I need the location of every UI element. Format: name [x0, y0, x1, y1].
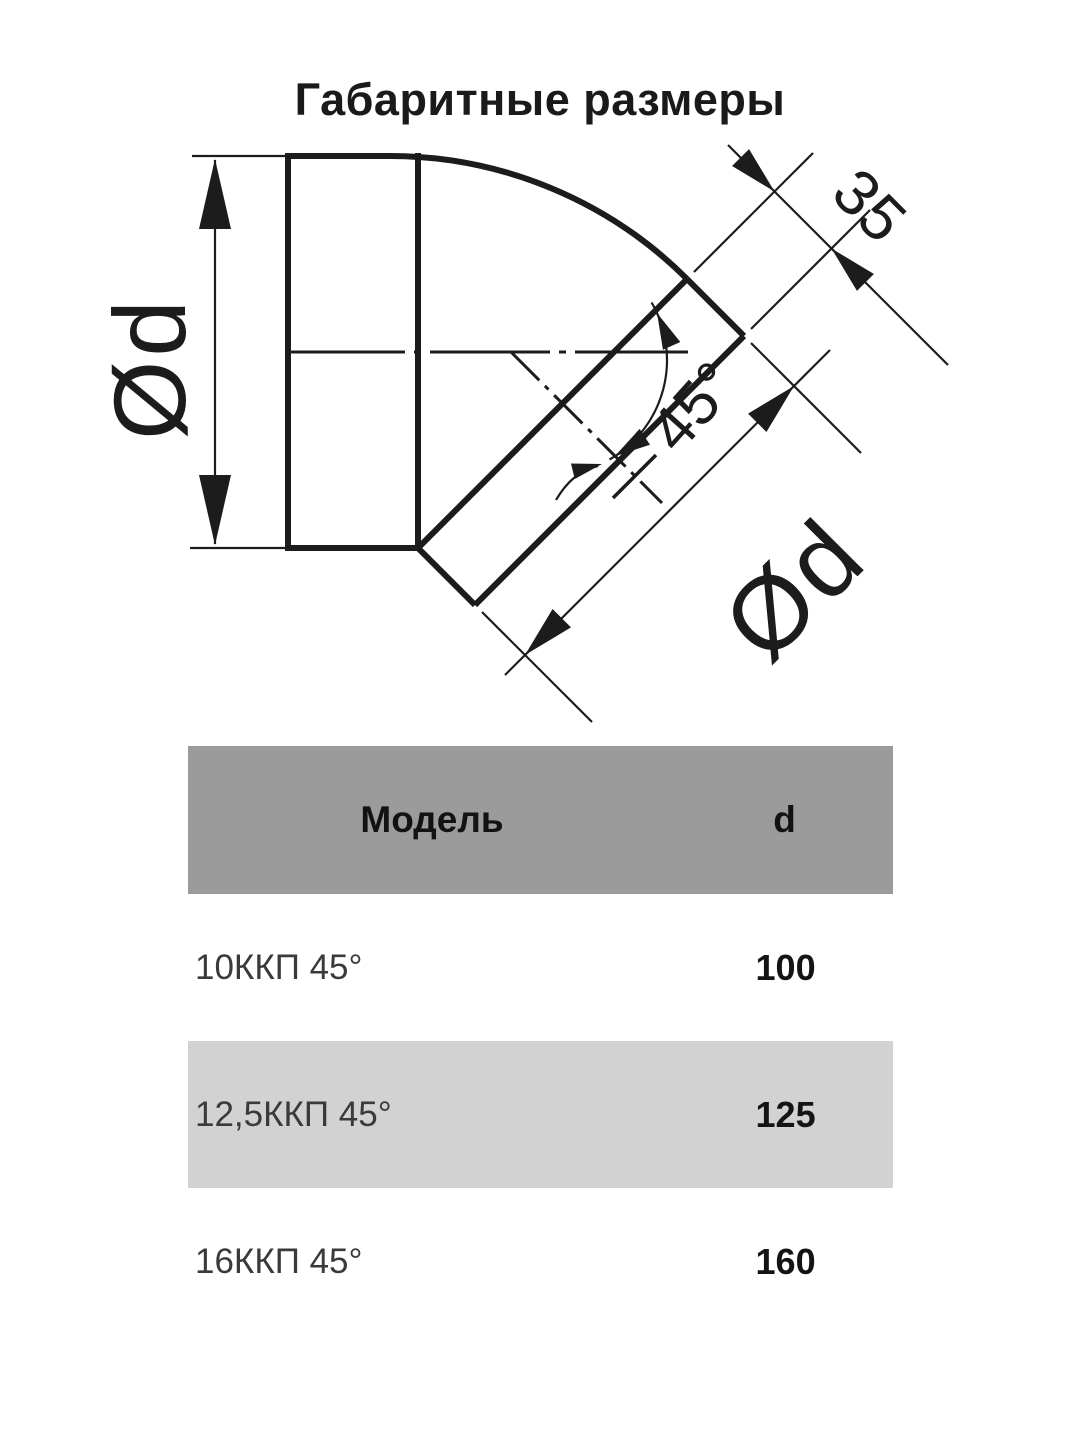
column-header-model: Модель [188, 746, 676, 894]
model-name: 12,5ККП 45° [188, 1041, 678, 1188]
table-row: 12,5ККП 45° 125 [188, 1041, 893, 1188]
label-outlet-diameter: Ød [702, 497, 888, 683]
model-name: 10ККП 45° [188, 894, 678, 1041]
table-row: 10ККП 45° 100 [188, 894, 893, 1041]
column-header-d: d [676, 746, 893, 894]
label-inlet-diameter: Ød [93, 296, 207, 440]
arrow-down-icon [199, 475, 231, 545]
label-straight-length: 35 [819, 155, 920, 256]
outlet-inner-edge [418, 548, 475, 605]
label-bend-angle: 45° [637, 349, 751, 465]
outlet-outer-edge [687, 279, 744, 336]
outlet-axis-centerline [511, 352, 662, 503]
outer-arc [285, 156, 687, 279]
outlet-ext-line-outer [751, 343, 861, 453]
table-row: 16ККП 45° 160 [188, 1188, 893, 1335]
table-header-row: Модель d [188, 746, 893, 894]
arrow-angle-leader-icon [571, 456, 604, 479]
outlet-ext-line-inner [482, 612, 592, 722]
dimension-lines [190, 145, 948, 722]
arrow-up-icon [199, 159, 231, 229]
model-name: 16ККП 45° [188, 1188, 678, 1335]
model-size-table: Модель d 10ККП 45° 100 12,5ККП 45° 125 1… [188, 746, 893, 1335]
diameter-value: 160 [678, 1188, 893, 1335]
diameter-value: 100 [678, 894, 893, 1041]
diameter-value: 125 [678, 1041, 893, 1188]
